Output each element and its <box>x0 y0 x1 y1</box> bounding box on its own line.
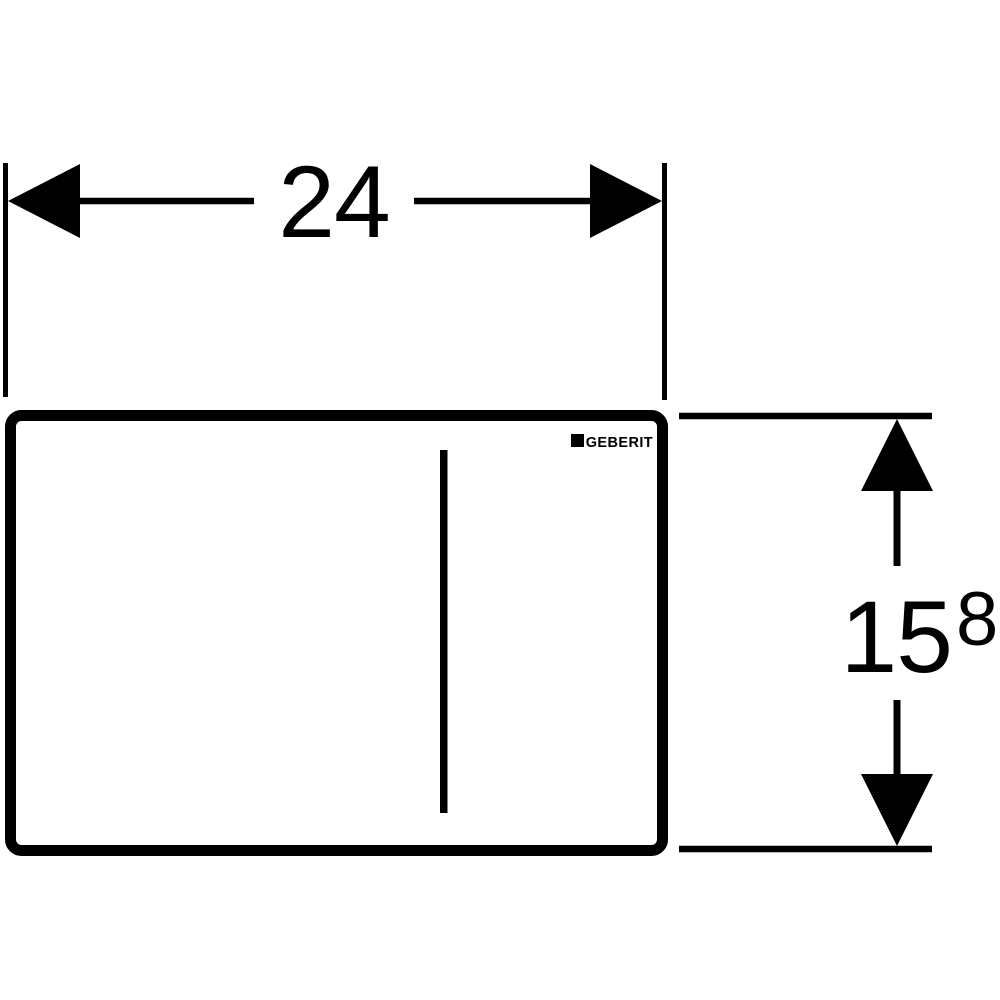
geberit-logo-text: GEBERIT <box>586 435 653 451</box>
width-dimension-label: 24 <box>278 145 389 259</box>
arrowhead-down-icon <box>861 774 933 846</box>
plate-divider-line <box>440 450 448 813</box>
arrowhead-left-icon <box>8 164 80 238</box>
drawing-canvas: 24 GEBERIT 15 8 <box>0 0 1000 1000</box>
height-dimension: 15 8 <box>679 416 998 849</box>
height-dimension-superscript: 8 <box>956 577 998 662</box>
height-dimension-label: 15 <box>841 580 952 694</box>
width-dimension: 24 <box>6 145 665 400</box>
flush-plate: GEBERIT <box>11 416 663 851</box>
plate-outline <box>11 416 663 851</box>
geberit-logo: GEBERIT <box>571 434 653 451</box>
arrowhead-up-icon <box>861 419 933 491</box>
geberit-logo-square-icon <box>571 434 584 447</box>
arrowhead-right-icon <box>590 164 662 238</box>
